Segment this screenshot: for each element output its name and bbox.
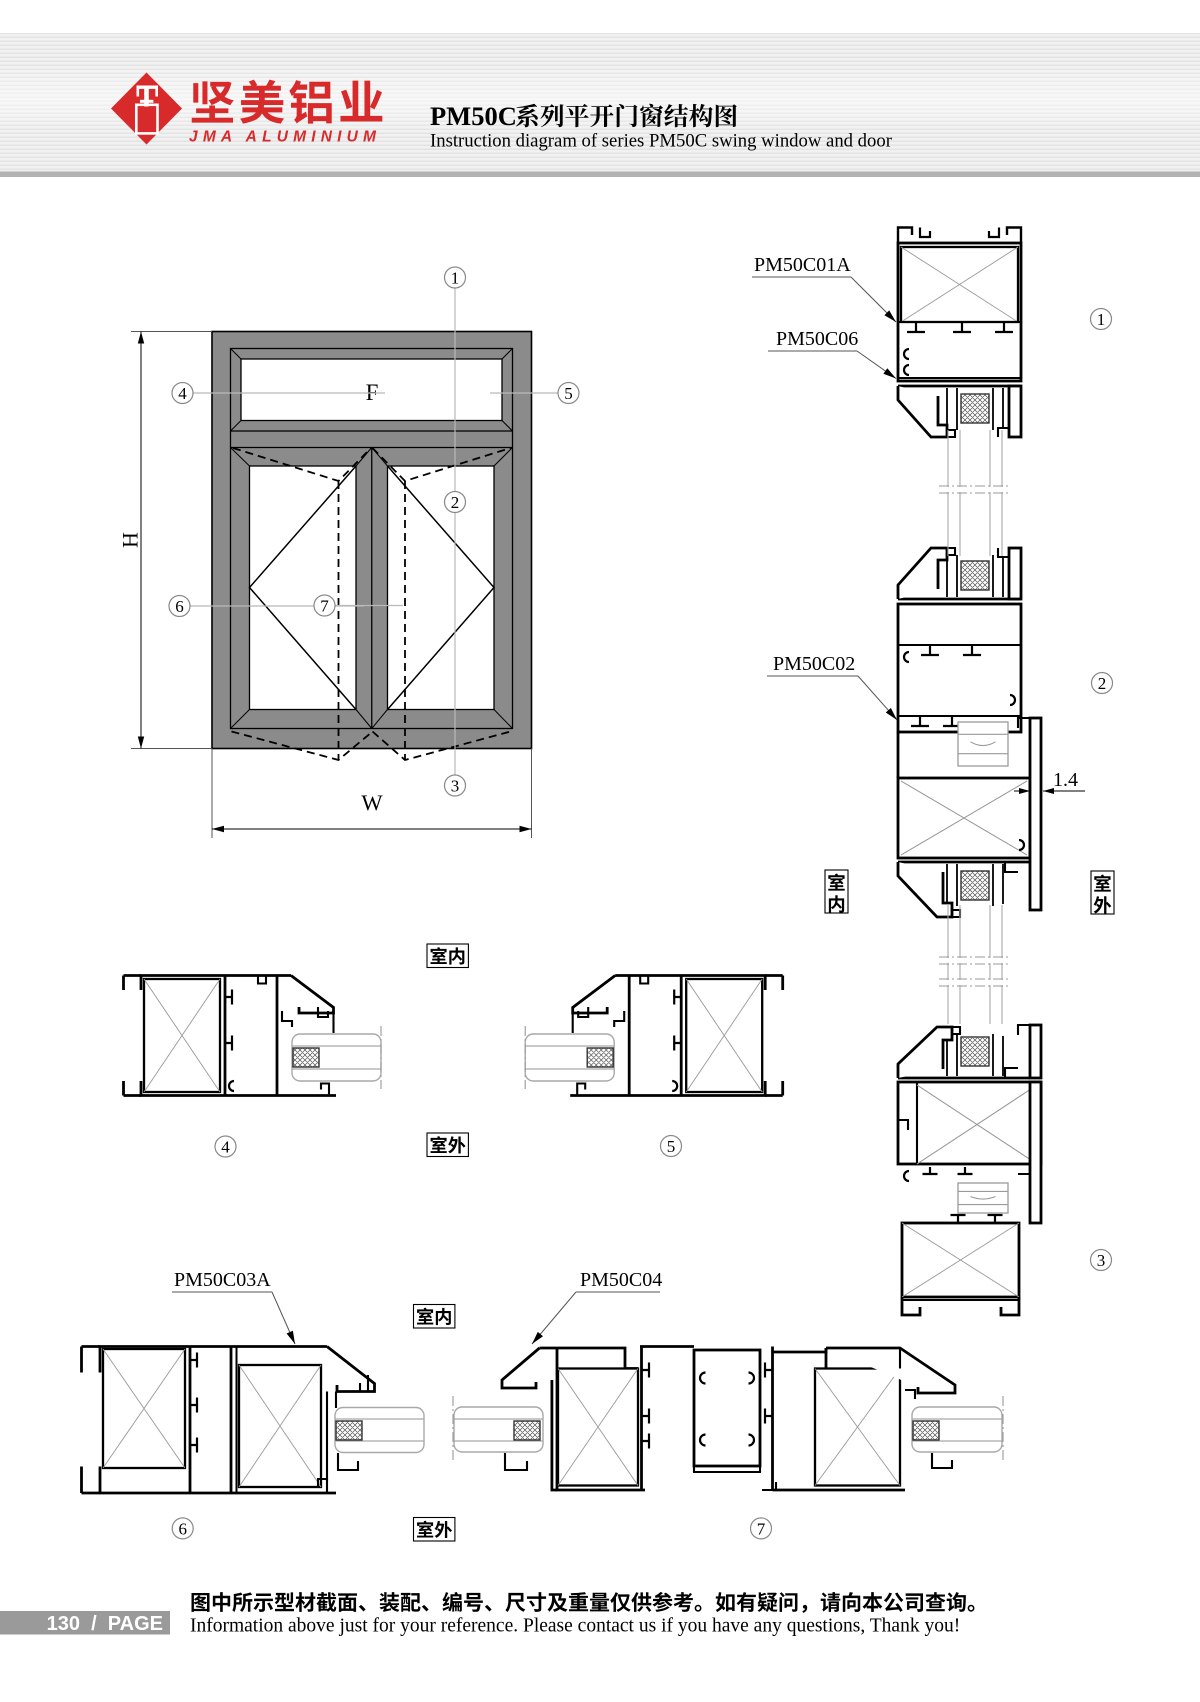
svg-text:2: 2 <box>1098 674 1107 693</box>
svg-text:130 / PAGE: 130 / PAGE <box>47 1613 163 1635</box>
svg-text:6: 6 <box>178 1520 187 1539</box>
svg-text:Information above just for you: Information above just for your referenc… <box>190 1616 960 1637</box>
svg-text:4: 4 <box>221 1138 230 1157</box>
svg-text:3: 3 <box>1097 1251 1106 1270</box>
svg-text:PM50C04: PM50C04 <box>580 1269 662 1291</box>
svg-text:PM50C: PM50C <box>430 101 517 131</box>
svg-text:PM50C06: PM50C06 <box>776 328 858 350</box>
svg-text:1: 1 <box>1097 310 1106 329</box>
svg-text:4: 4 <box>178 384 187 403</box>
svg-text:6: 6 <box>175 597 184 616</box>
svg-text:2: 2 <box>451 493 460 512</box>
svg-text:H: H <box>118 532 143 548</box>
svg-text:7: 7 <box>757 1520 766 1539</box>
svg-text:1.4: 1.4 <box>1053 769 1078 791</box>
svg-text:3: 3 <box>451 777 460 796</box>
svg-text:PM50C03A: PM50C03A <box>174 1269 271 1291</box>
svg-text:5: 5 <box>667 1137 676 1156</box>
svg-text:PM50C01A: PM50C01A <box>754 254 851 276</box>
svg-text:Instruction diagram of series: Instruction diagram of series PM50C swin… <box>430 131 893 152</box>
svg-text:W: W <box>361 790 383 815</box>
svg-text:5: 5 <box>564 384 573 403</box>
svg-text:JMA ALUMINIUM: JMA ALUMINIUM <box>189 129 381 146</box>
svg-text:1: 1 <box>451 269 460 288</box>
svg-text:PM50C02: PM50C02 <box>773 653 855 675</box>
svg-text:7: 7 <box>320 597 329 616</box>
